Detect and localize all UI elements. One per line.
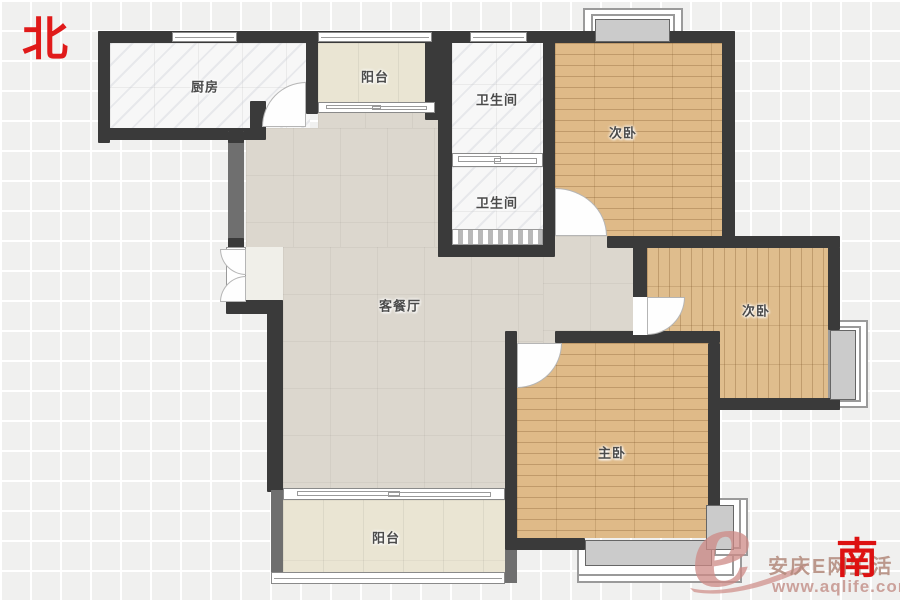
window-bathroom [470, 32, 527, 42]
floorplan-canvas: 厨房 阳台 卫生间 卫生间 次卧 次卧 客餐厅 主卧 阳台 北 南 e 安庆E网… [0, 0, 900, 600]
bay-window-master-south [585, 540, 712, 566]
room-label-bedroom-e: 次卧 [742, 301, 770, 320]
room-label-living: 客餐厅 [379, 296, 421, 315]
wall-segment [828, 247, 840, 330]
wall-segment [505, 538, 585, 550]
entry-floor [246, 247, 283, 302]
doorway-bedroom-e [633, 297, 647, 335]
wall-segment [722, 31, 735, 248]
wall-segment [438, 245, 555, 257]
entry-door-arc [220, 249, 246, 275]
wall-segment-glass [505, 550, 517, 583]
wall-segment [438, 31, 452, 257]
room-label-bath-mid: 卫生间 [476, 193, 518, 212]
wall-segment-glass [271, 490, 283, 584]
wall-segment [708, 343, 720, 507]
wall-segment [267, 300, 283, 492]
bay-window-ne [595, 19, 670, 42]
entry-door-arc [220, 276, 246, 302]
wall-segment [505, 331, 517, 550]
wall-segment [228, 131, 244, 143]
bay-window-east [830, 330, 856, 400]
window-balcony-top [318, 32, 432, 42]
room-label-balcony-bottom: 阳台 [372, 528, 400, 547]
wall-segment [306, 31, 318, 114]
wall-segment [98, 31, 110, 143]
room-label-balcony-top: 阳台 [361, 67, 389, 86]
room-label-bath-top: 卫生间 [476, 90, 518, 109]
compass-south-label: 南 [836, 538, 878, 580]
compass-north-label: 北 [22, 16, 68, 62]
wall-segment [633, 247, 647, 299]
sliding-door-balcony-bottom [283, 488, 505, 500]
wall-segment-glass [228, 131, 244, 250]
hallway-floor [543, 236, 647, 343]
window-kitchen [172, 32, 237, 42]
wall-segment [708, 398, 840, 410]
window-balcony-rail [271, 572, 505, 584]
bay-window-master-east [706, 505, 734, 550]
sliding-door-bathroom [452, 153, 543, 167]
room-label-bedroom-ne: 次卧 [609, 123, 637, 142]
wall-segment [543, 31, 555, 248]
room-label-kitchen: 厨房 [191, 77, 219, 96]
room-label-master: 主卧 [598, 443, 626, 462]
sliding-door-balcony-top [318, 102, 435, 113]
shower-hatch-strip [452, 229, 543, 245]
